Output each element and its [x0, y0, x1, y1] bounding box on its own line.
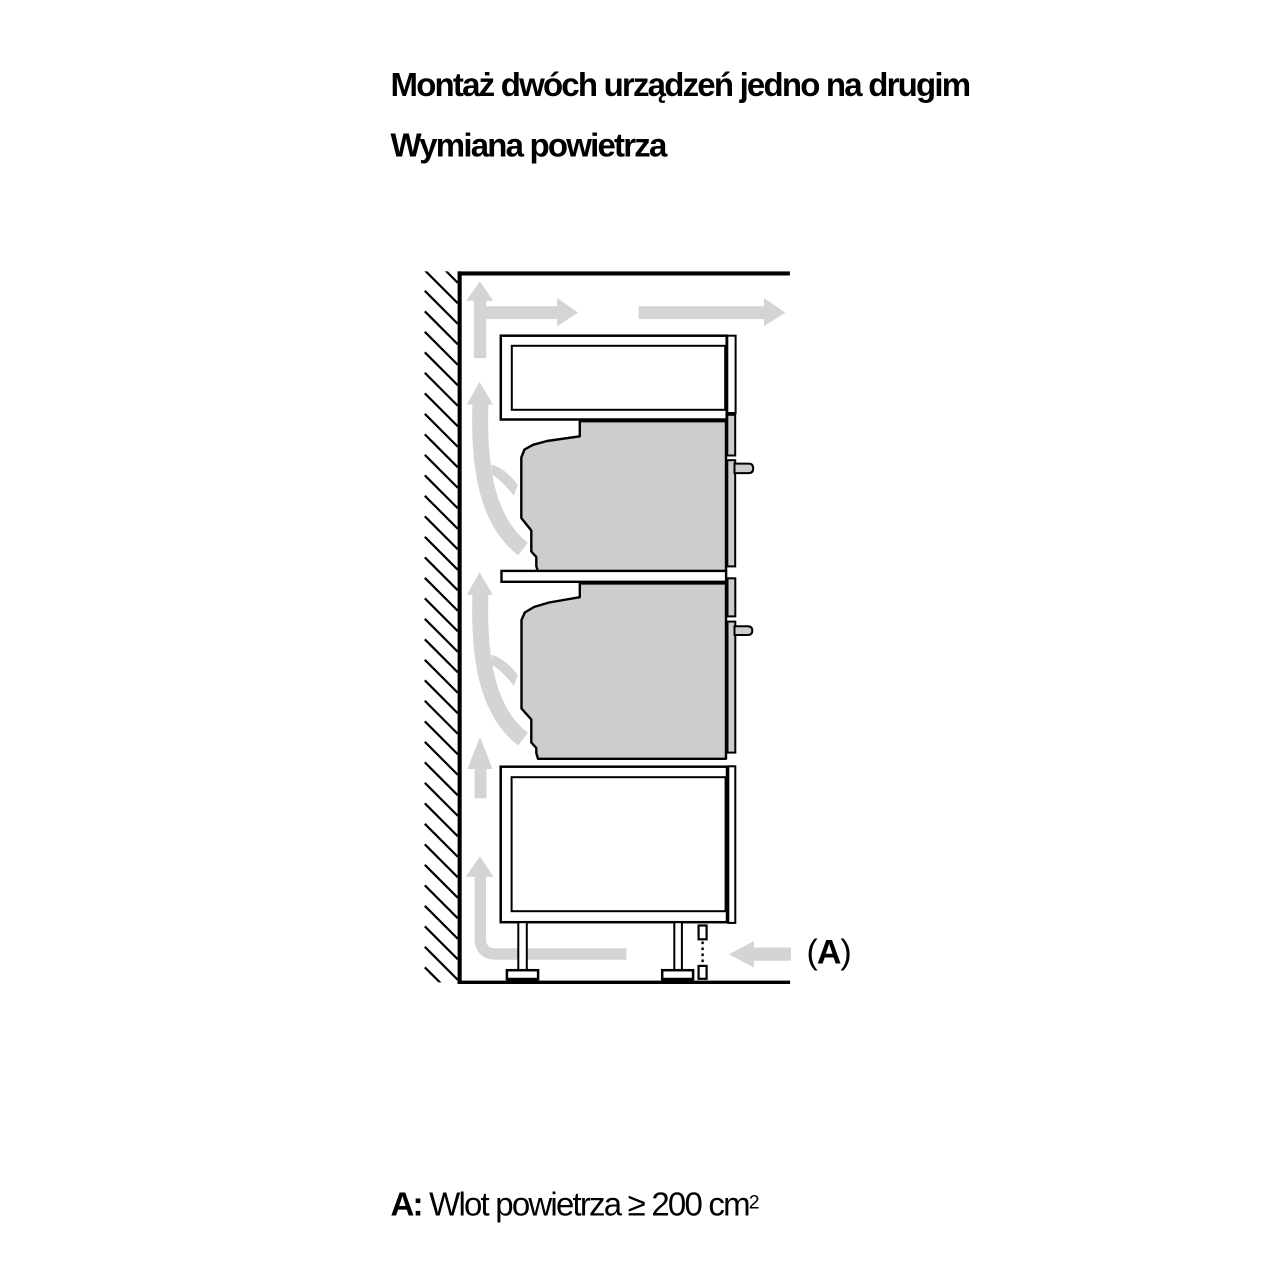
svg-text:Montaż dwóch urządzeń jedno na: Montaż dwóch urządzeń jedno na drugim — [391, 66, 970, 103]
svg-text:Wymiana powietrza: Wymiana powietrza — [391, 127, 668, 164]
svg-text:A: Wlot powietrza ≥ 200 cm2: A: Wlot powietrza ≥ 200 cm2 — [391, 1186, 759, 1223]
svg-text:(A): (A) — [807, 934, 851, 972]
